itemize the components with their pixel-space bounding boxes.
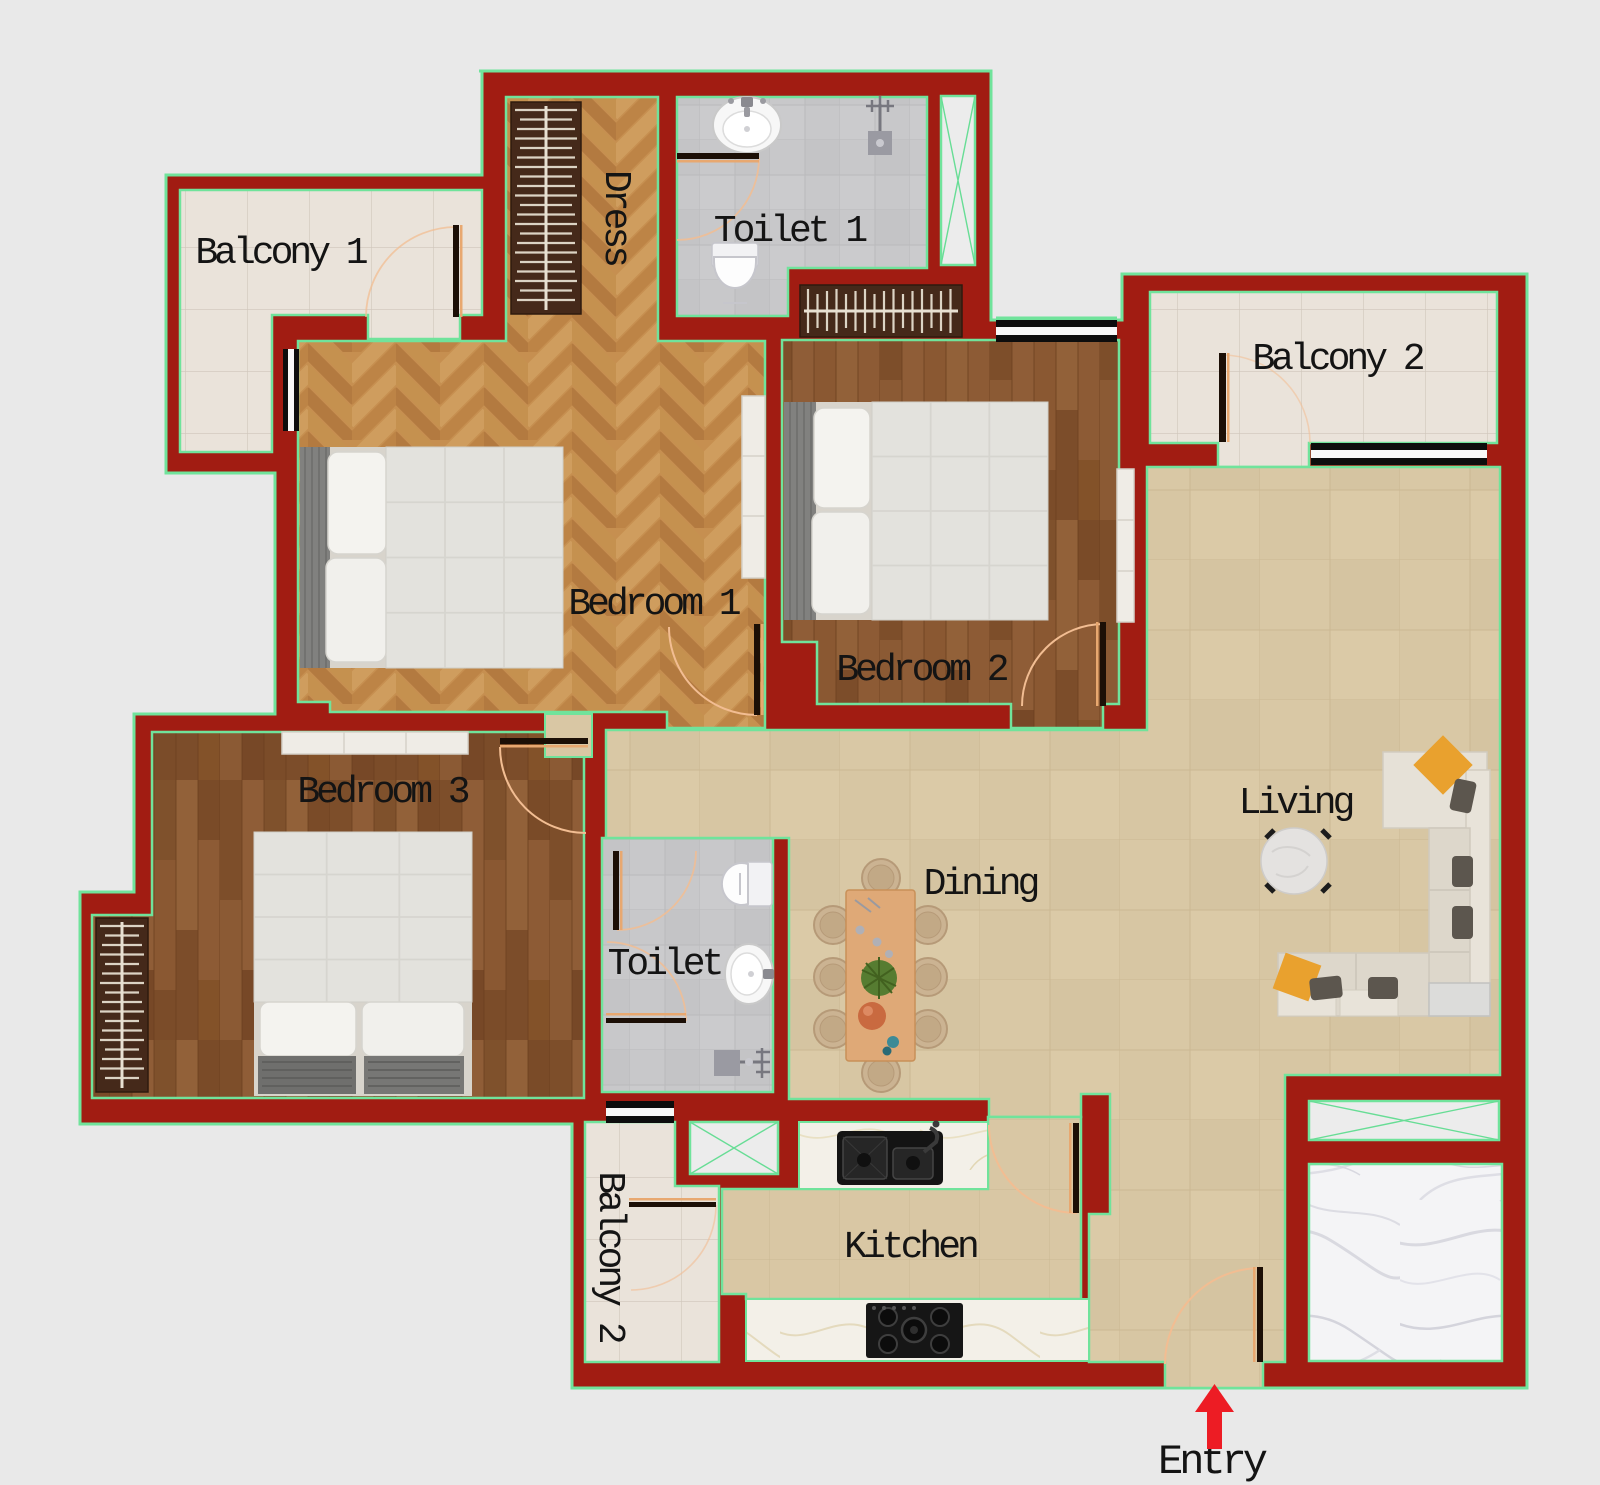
svg-text:Toilet 1: Toilet 1 xyxy=(714,210,867,253)
svg-text:Balcony 2: Balcony 2 xyxy=(588,1171,631,1342)
svg-text:Bedroom 1: Bedroom 1 xyxy=(568,583,739,626)
svg-text:Living: Living xyxy=(1239,782,1353,825)
svg-text:Dress: Dress xyxy=(594,170,637,265)
svg-text:Balcony 2: Balcony 2 xyxy=(1252,338,1423,381)
svg-text:Balcony 1: Balcony 1 xyxy=(195,232,366,275)
svg-text:Kitchen: Kitchen xyxy=(844,1226,977,1269)
svg-text:Dining: Dining xyxy=(924,863,1038,906)
svg-text:Toilet: Toilet xyxy=(608,943,721,986)
svg-text:Bedroom 3: Bedroom 3 xyxy=(297,771,468,814)
svg-text:Bedroom 2: Bedroom 2 xyxy=(836,649,1007,692)
